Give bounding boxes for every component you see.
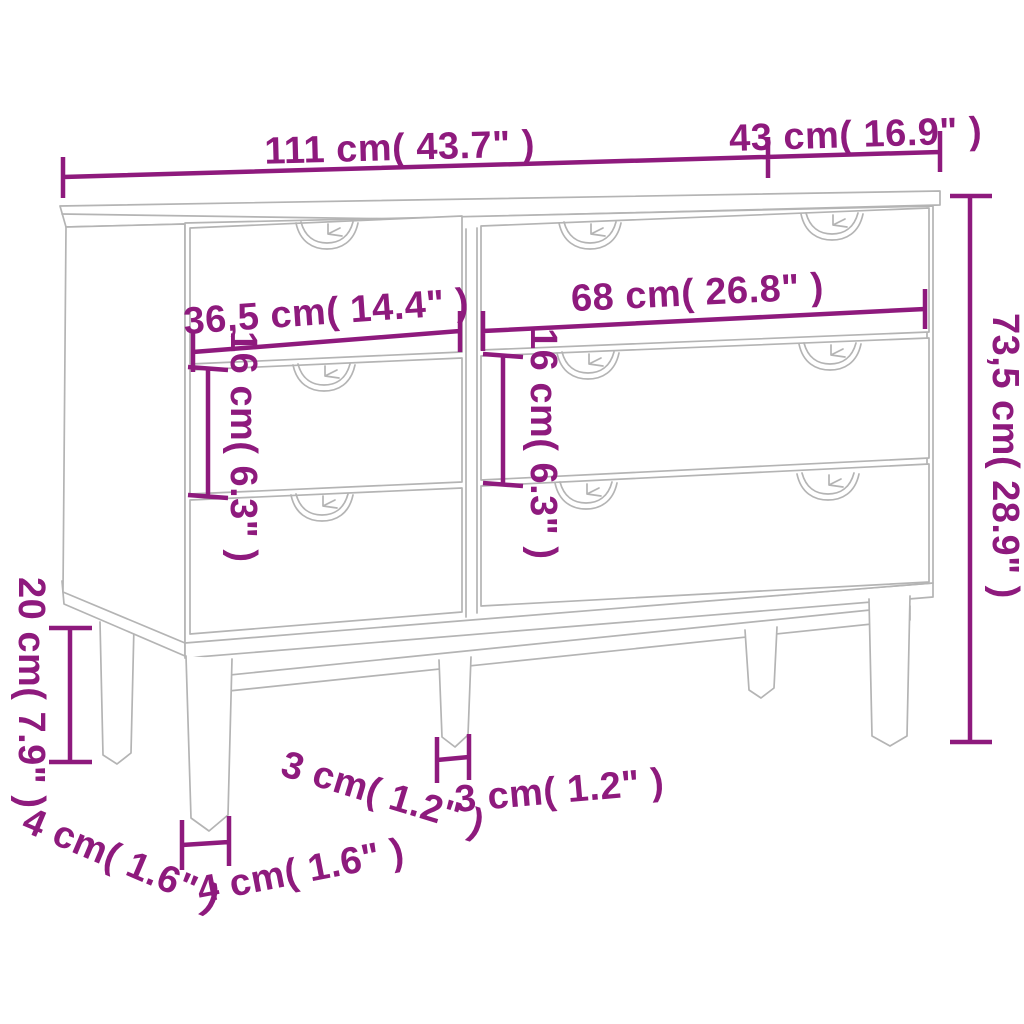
front-left-leg — [186, 656, 232, 831]
front-right-leg — [869, 596, 910, 746]
rear-left-leg — [100, 622, 134, 764]
left-side-panel — [63, 224, 185, 643]
sideboard-dimension-diagram: 111 cm( 43.7" ) 43 cm( 16.9" ) 36,5 cm( … — [0, 0, 1024, 1024]
middle-back-leg — [439, 657, 471, 747]
overall-height-label: 73,5 cm( 28.9" ) — [984, 313, 1024, 599]
leg-height-label: 20 cm( 7.9" ) — [10, 577, 52, 809]
leg-depth-label: 3 cm( 1.2" ) — [453, 761, 666, 821]
dim-line-leg-height — [49, 628, 92, 762]
overall-width-label: 111 cm( 43.7" ) — [264, 123, 536, 173]
dimension-diagram-page: 111 cm( 43.7" ) 43 cm( 16.9" ) 36,5 cm( … — [0, 0, 1024, 1024]
right-drawer-height-label: 16 cm( 6.3" ) — [522, 328, 564, 560]
left-drawer-height-label: 16 cm( 6.3" ) — [222, 331, 264, 563]
overall-depth-label: 43 cm( 16.9" ) — [728, 110, 982, 160]
rear-middle-leg — [745, 627, 777, 698]
